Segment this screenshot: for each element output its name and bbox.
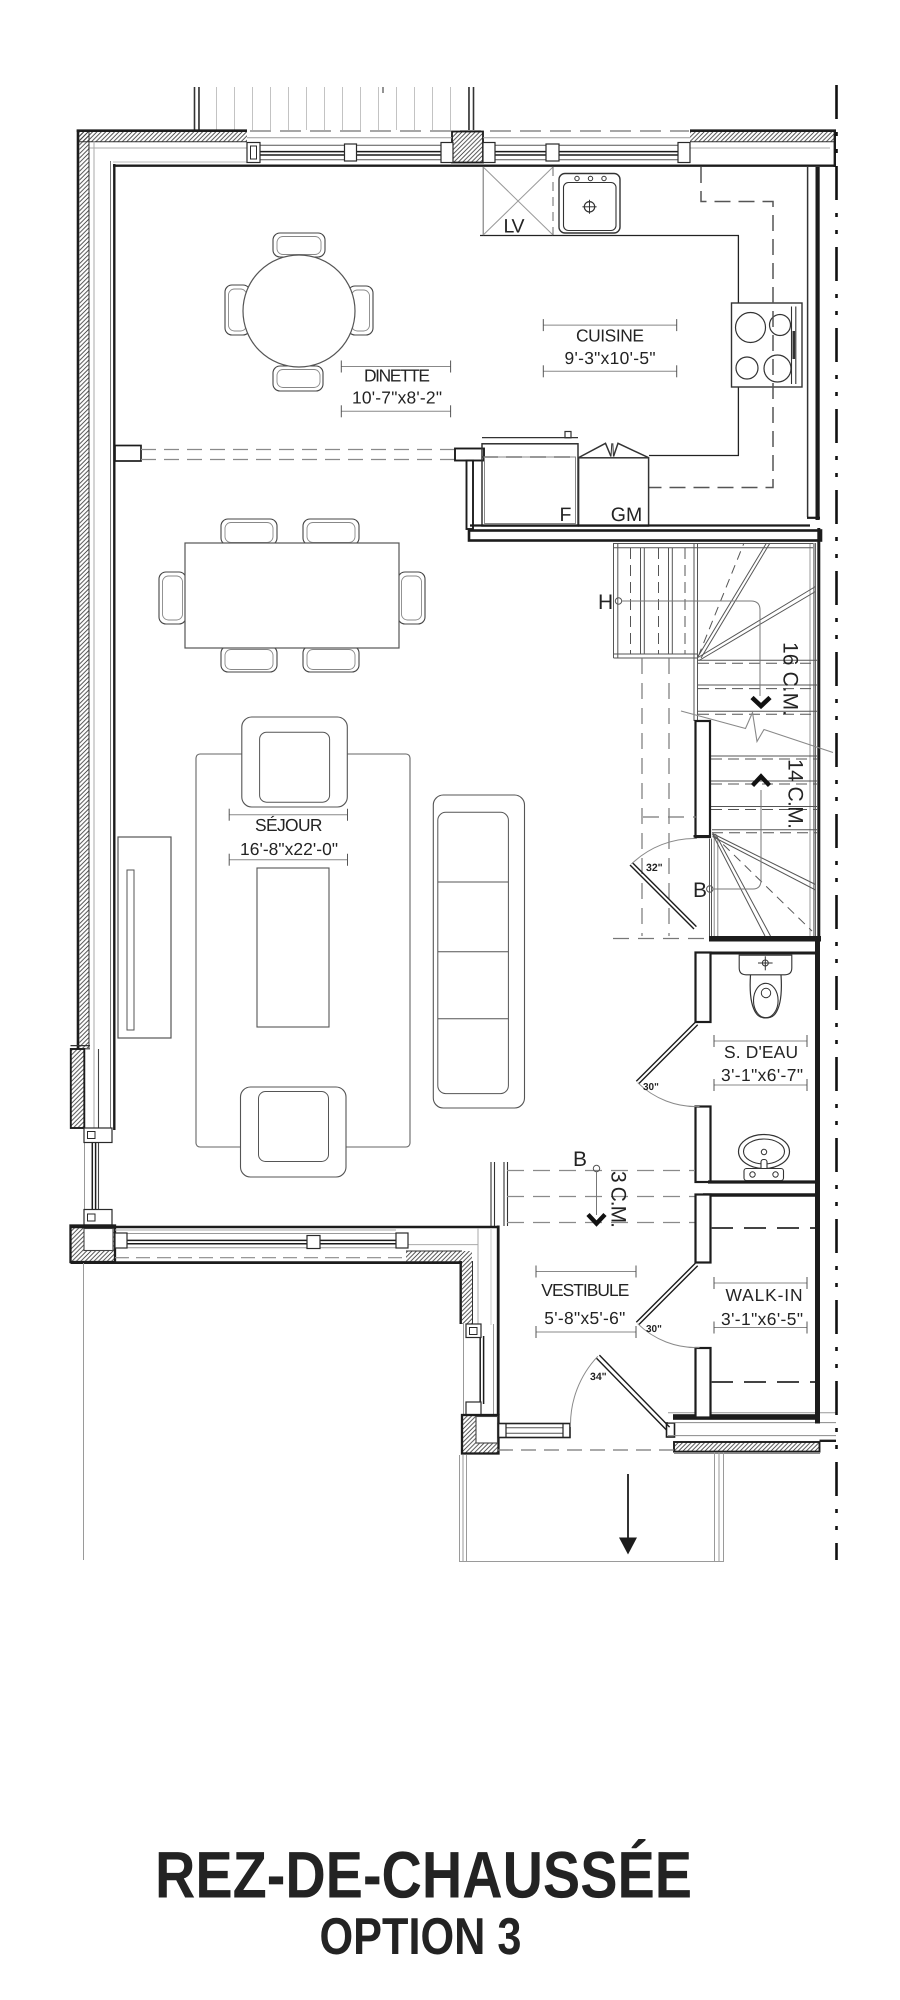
svg-text:WALK-IN: WALK-IN: [726, 1285, 803, 1305]
svg-text:30": 30": [646, 1324, 662, 1335]
svg-text:30": 30": [643, 1082, 659, 1093]
svg-text:H: H: [598, 591, 613, 614]
svg-text:3'-1"x6'-7": 3'-1"x6'-7": [721, 1065, 803, 1085]
svg-text:B: B: [573, 1148, 587, 1171]
svg-text:10'-7"x8'-2": 10'-7"x8'-2": [352, 388, 442, 408]
svg-text:GM: GM: [611, 504, 643, 526]
svg-text:16 C.M.: 16 C.M.: [779, 642, 802, 716]
svg-text:VESTIBULE: VESTIBULE: [541, 1280, 629, 1300]
svg-text:14 C.M.: 14 C.M.: [784, 759, 807, 829]
svg-text:F: F: [560, 504, 572, 526]
svg-text:CUISINE: CUISINE: [576, 325, 644, 345]
svg-text:SÉJOUR: SÉJOUR: [255, 815, 323, 835]
svg-text:DINETTE: DINETTE: [364, 366, 430, 386]
svg-text:34": 34": [590, 1371, 607, 1383]
svg-text:3 C.M.: 3 C.M.: [607, 1171, 630, 1228]
svg-text:S. D'EAU: S. D'EAU: [724, 1042, 798, 1062]
svg-text:5'-8"x5'-6": 5'-8"x5'-6": [544, 1308, 625, 1328]
svg-text:LV: LV: [504, 216, 525, 238]
svg-text:B: B: [693, 879, 707, 902]
svg-text:16'-8"x22'-0": 16'-8"x22'-0": [240, 839, 338, 859]
svg-text:3'-1"x6'-5": 3'-1"x6'-5": [721, 1309, 803, 1329]
svg-text:32": 32": [646, 862, 663, 874]
svg-text:OPTION 3: OPTION 3: [320, 1908, 522, 1966]
svg-text:9'-3"x10'-5": 9'-3"x10'-5": [565, 348, 656, 368]
svg-text:REZ-DE-CHAUSSÉE: REZ-DE-CHAUSSÉE: [155, 1838, 692, 1912]
